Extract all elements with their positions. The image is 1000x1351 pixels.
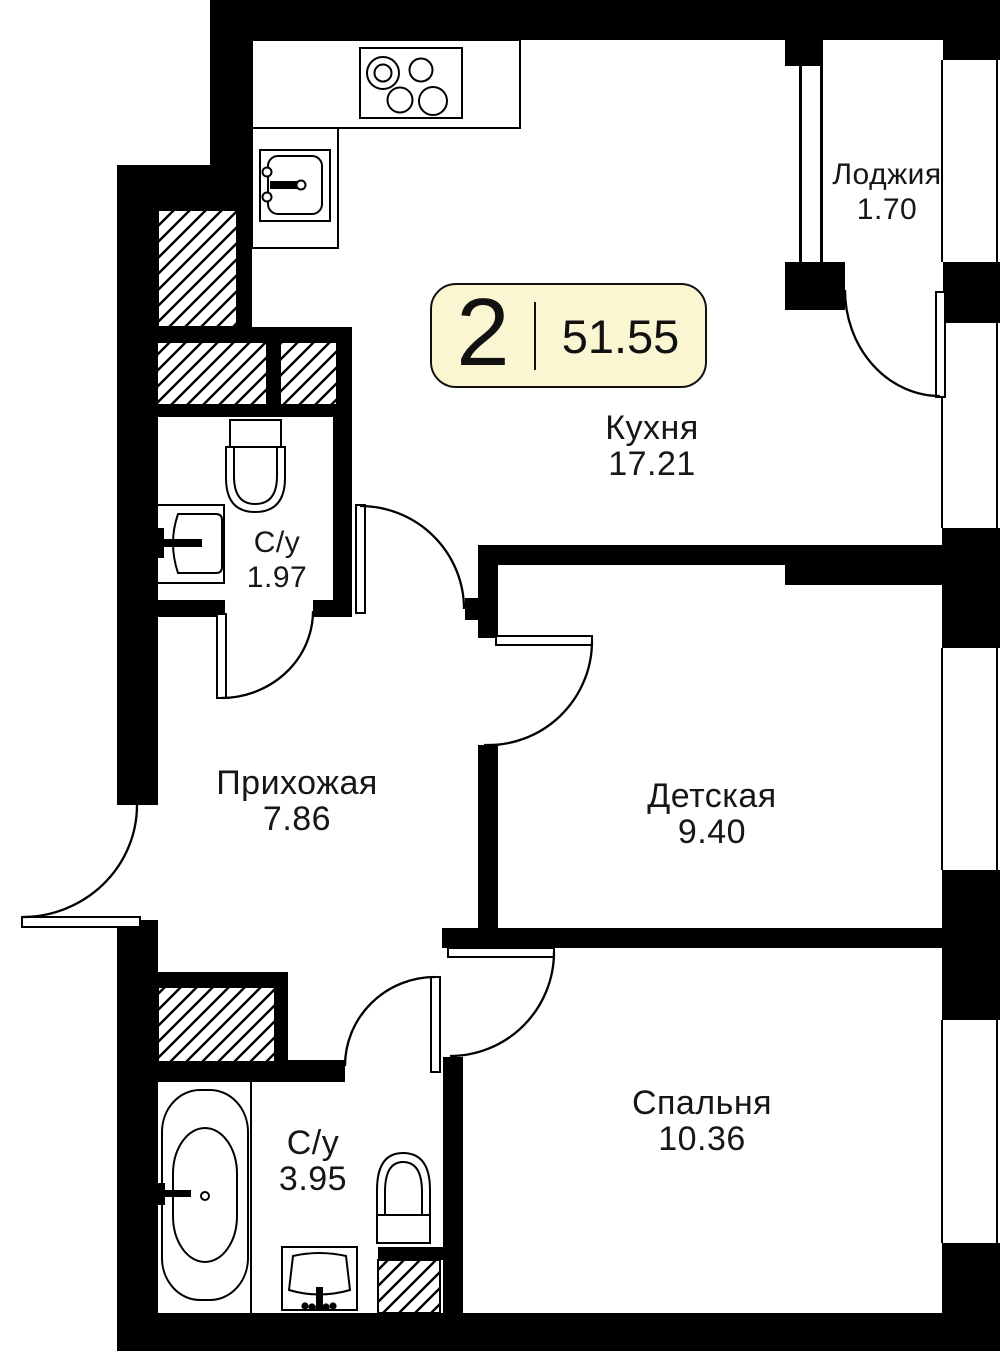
wall-top-left-column (210, 0, 252, 170)
wall-kitchen-door-nub (465, 598, 480, 620)
wall-shaft4-top (378, 1247, 463, 1260)
bathroom2-door-leaf (431, 977, 440, 1072)
door-swing-arc (22, 805, 137, 917)
window-glazing (941, 648, 943, 870)
wall-shaft3-top (157, 972, 288, 987)
wall-children-top-a (478, 545, 785, 565)
ventilation-shaft-hatch (378, 1260, 440, 1313)
wall-bath1-right (333, 415, 352, 617)
wall-children-top-b (785, 545, 943, 585)
window-glazing (996, 1020, 998, 1243)
wall-shaft2-divider (267, 342, 280, 405)
wall-facade-stub1 (943, 38, 1000, 60)
kitchen-fixtures (252, 40, 520, 248)
window-glazing (820, 66, 823, 262)
door-swing-arc (360, 506, 464, 609)
toilet-icon (377, 1153, 430, 1243)
bathtub-niche-line (250, 1082, 252, 1313)
room-area: 10.36 (632, 1121, 772, 1157)
wall-bedroom-left (443, 1057, 463, 1313)
wall-facade-stub2 (943, 262, 1000, 323)
window-glazing (996, 323, 998, 528)
wall-facade-stub3 (942, 528, 1000, 648)
door-swing-arc (345, 977, 435, 1066)
wall-children-west-lower (478, 745, 498, 928)
wall-bottom (117, 1313, 1000, 1351)
wall-children-bedroom-divider (442, 928, 943, 948)
washbasin-icon (282, 1247, 357, 1310)
wall-top (210, 0, 1000, 40)
ventilation-shaft-hatch (158, 210, 237, 327)
wall-shaft3-right (275, 987, 288, 1062)
wall-left-upper (117, 210, 158, 805)
room-label-loggia: Лоджия 1.70 (832, 157, 941, 227)
room-name: С/у (247, 525, 307, 560)
bathtub-icon (155, 1090, 248, 1300)
room-name: Лоджия (832, 157, 941, 192)
apartment-badge: 2 51.55 (430, 283, 707, 388)
ventilation-shaft-hatch (158, 987, 275, 1062)
kitchen-door-leaf (356, 505, 365, 613)
door-swing-arc (845, 290, 940, 396)
room-label-bathroom1: С/у 1.97 (247, 525, 307, 595)
room-label-hallway: Прихожая 7.86 (216, 765, 378, 837)
room-area: 1.70 (832, 192, 941, 227)
room-area: 17.21 (605, 446, 699, 482)
room-label-bathroom2: С/у 3.95 (279, 1125, 347, 1197)
entry-door-leaf (22, 917, 140, 927)
wall-bath1-right-column (337, 327, 352, 422)
room-label-kitchen: Кухня 17.21 (605, 410, 699, 482)
room-name: Прихожая (216, 765, 378, 801)
toilet-icon (226, 420, 285, 512)
ventilation-shaft-hatch (157, 342, 267, 405)
door-swing-arc (484, 641, 592, 745)
door-swing-arc (450, 952, 554, 1056)
wall-shaft1-right (237, 165, 252, 342)
room-area: 9.40 (647, 814, 776, 850)
kitchen-sink-icon (260, 150, 330, 221)
floor-plan: 2 51.55 Кухня 17.21 Лоджия 1.70 С/у 1.97… (0, 0, 1000, 1351)
room-name: Спальня (632, 1085, 772, 1121)
room-area: 3.95 (279, 1161, 347, 1197)
wall-loggia-stub-top (785, 38, 823, 66)
loggia-door-leaf (936, 292, 945, 397)
stove-icon (360, 48, 462, 118)
window-glazing (996, 648, 998, 870)
room-area: 7.86 (216, 801, 378, 837)
wall-top-left-band (117, 165, 252, 210)
room-area: 1.97 (247, 560, 307, 595)
wall-shaft1-bottom (155, 327, 352, 342)
wall-bath1-bottom-left (155, 600, 225, 617)
room-label-children: Детская 9.40 (647, 778, 776, 850)
window-glazing (996, 60, 998, 262)
windows (250, 60, 998, 1313)
total-area: 51.55 (536, 309, 705, 364)
window-glazing (941, 1020, 943, 1243)
wall-facade-stub5 (942, 1243, 1000, 1351)
wall-bath1-bottom-right (313, 600, 352, 617)
wall-children-west-upper (478, 565, 498, 638)
wall-bath2-top (148, 1060, 345, 1082)
window-glazing (799, 66, 802, 262)
rooms-count: 2 (432, 285, 534, 381)
room-name: С/у (279, 1125, 347, 1161)
ventilation-shaft-hatch (280, 342, 337, 405)
wall-facade-stub4 (942, 870, 1000, 1020)
wall-left-lower (117, 920, 158, 1351)
room-name: Детская (647, 778, 776, 814)
wall-shaft2-bottom (155, 405, 350, 417)
bathroom1-door-leaf (217, 614, 226, 698)
room-name: Кухня (605, 410, 699, 446)
children-room-door-leaf (496, 636, 592, 645)
room-label-bedroom: Спальня 10.36 (632, 1085, 772, 1157)
wall-loggia-bottom (785, 262, 845, 310)
washbasin-icon (155, 505, 224, 583)
door-swing-arc (221, 611, 313, 698)
bedroom-door-leaf (448, 948, 554, 957)
